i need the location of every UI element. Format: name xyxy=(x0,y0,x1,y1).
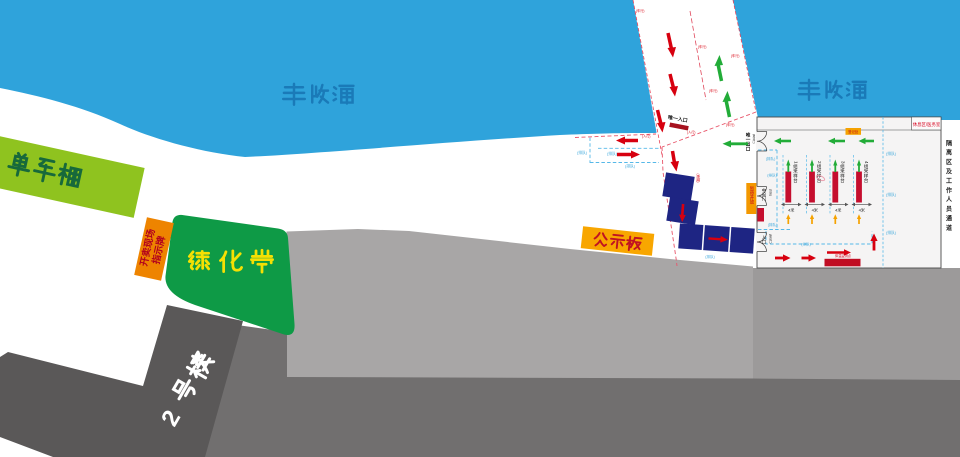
svg-text:登记处: 登记处 xyxy=(848,129,859,134)
svg-text:体温监测点: 体温监测点 xyxy=(835,253,852,258)
svg-text:(排队): (排队) xyxy=(607,151,618,156)
svg-text:4米: 4米 xyxy=(812,207,818,213)
svg-text:4组采样台: 4组采样台 xyxy=(863,161,869,184)
svg-text:休息区/医务室: 休息区/医务室 xyxy=(913,121,941,128)
svg-text:4米: 4米 xyxy=(835,207,841,213)
svg-text:4米: 4米 xyxy=(859,207,865,213)
svg-text:(人行): (人行) xyxy=(642,134,651,139)
svg-text:(人行): (人行) xyxy=(687,130,696,135)
svg-text:暂停开放: 暂停开放 xyxy=(749,185,755,205)
svg-text:(车行): (车行) xyxy=(726,122,735,127)
svg-text:中间门: 中间门 xyxy=(762,187,767,203)
svg-text:(排队): (排队) xyxy=(767,173,777,178)
svg-text:3组采样台: 3组采样台 xyxy=(840,161,846,184)
svg-text:(排队): (排队) xyxy=(705,254,715,259)
svg-text:4米: 4米 xyxy=(788,207,794,213)
svg-text:(车行): (车行) xyxy=(698,44,707,49)
svg-text:(排队): (排队) xyxy=(886,192,897,197)
svg-text:(排队): (排队) xyxy=(625,164,636,169)
svg-text:唯一出口: 唯一出口 xyxy=(745,132,751,153)
svg-text:隔离区及工作人员通道: 隔离区及工作人员通道 xyxy=(945,139,952,234)
svg-text:(排队): (排队) xyxy=(766,156,776,161)
svg-text:1组采样台: 1组采样台 xyxy=(793,161,799,184)
svg-text:(排队): (排队) xyxy=(886,151,897,156)
svg-text:入口: 入口 xyxy=(761,235,767,244)
svg-text:(车行): (车行) xyxy=(731,53,740,58)
svg-text:(排队): (排队) xyxy=(801,241,811,246)
svg-text:(排队): (排队) xyxy=(886,230,897,235)
svg-text:(排队): (排队) xyxy=(768,222,778,227)
svg-text:(车行): (车行) xyxy=(636,8,645,13)
svg-text:(排队): (排队) xyxy=(577,150,588,155)
svg-text:(雨棚): (雨棚) xyxy=(696,173,701,182)
svg-text:(车行): (车行) xyxy=(709,88,718,93)
